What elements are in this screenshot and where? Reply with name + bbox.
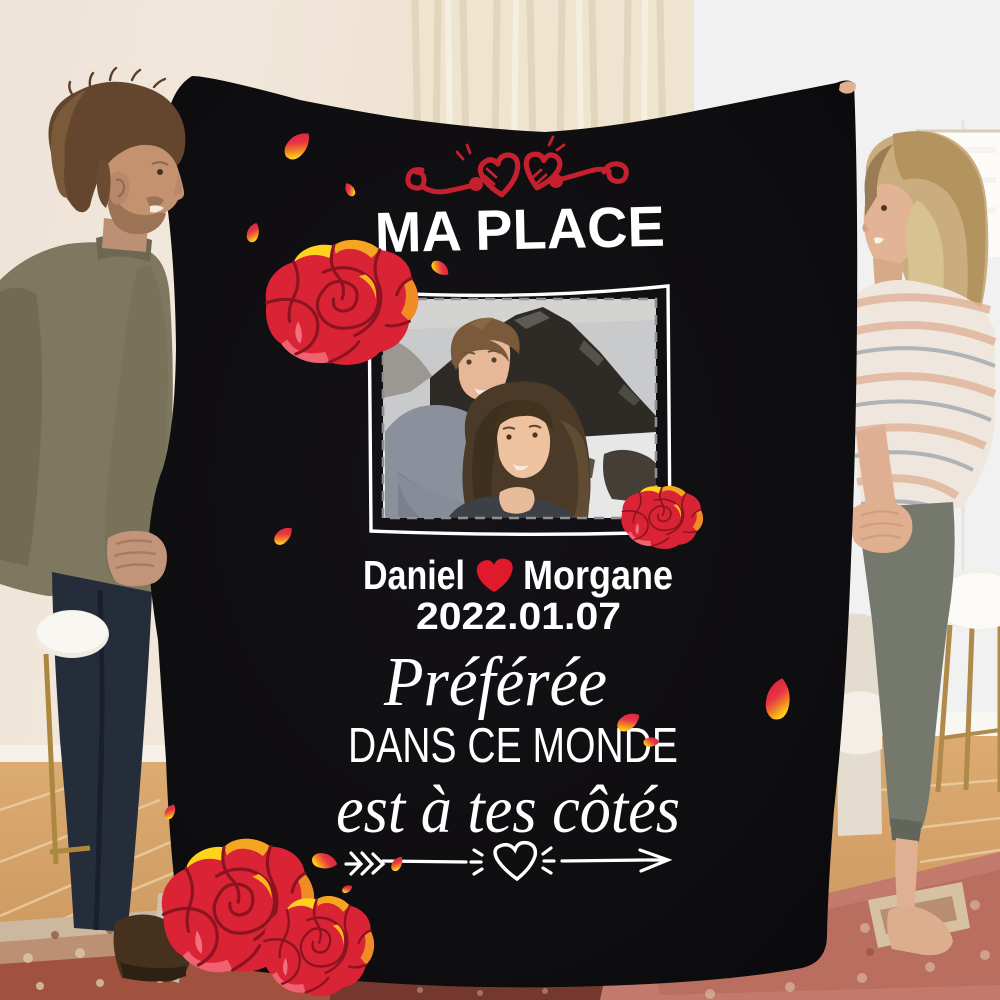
svg-text:Daniel: Daniel [363, 552, 465, 598]
svg-text:2022.01.07: 2022.01.07 [416, 596, 621, 638]
svg-text:Préférée: Préférée [383, 644, 607, 721]
svg-text:Morgane: Morgane [523, 552, 673, 598]
svg-text:MA PLACE: MA PLACE [374, 195, 665, 266]
svg-text:est à tes côtés: est à tes côtés [336, 771, 680, 847]
